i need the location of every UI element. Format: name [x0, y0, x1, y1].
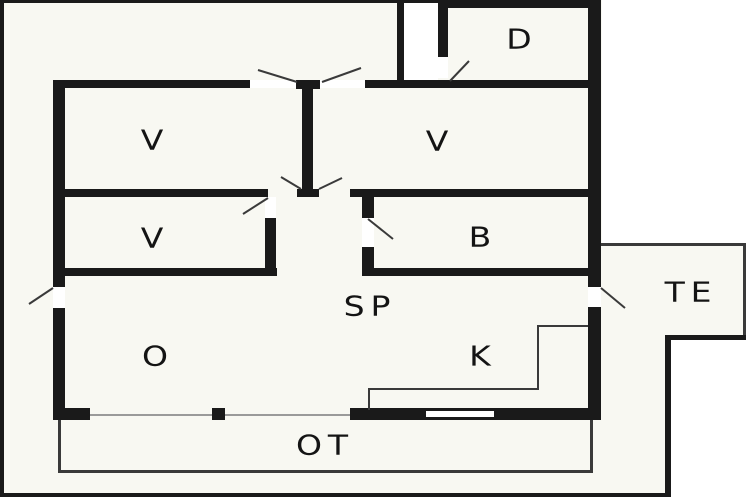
room-label-d: D [506, 23, 531, 56]
wall-b-left-upper [362, 197, 374, 218]
wall-bottom-b [350, 408, 426, 420]
wall-vtr-bottom [350, 189, 600, 197]
pier-stem [302, 88, 313, 189]
room-label-v-mid-left: V [141, 222, 164, 255]
window-top-right [320, 80, 365, 88]
ot-edge-bottom [58, 470, 593, 473]
frame-left [0, 0, 4, 497]
wall-d-top [438, 0, 600, 8]
room-label-ot: OT [296, 429, 354, 462]
wall-d-left [438, 2, 448, 57]
wall-bottom-pier [212, 408, 225, 420]
wall-bottom-a [53, 408, 90, 420]
room-label-k: K [469, 340, 491, 373]
paper-main [0, 0, 602, 497]
room-label-o: O [142, 340, 168, 373]
terrace-edge-bottom [665, 335, 746, 340]
wall-right-lower [588, 307, 601, 420]
wall-right-upper [588, 0, 601, 287]
kitchen-line-bottom [368, 388, 538, 390]
ot-edge-right [590, 420, 593, 473]
door-gap-left [53, 287, 65, 308]
wall-b-bottom [362, 268, 600, 276]
terrace-edge-top [600, 243, 746, 246]
door-gap-terrace [588, 287, 601, 307]
wall-vtl-bottom [53, 189, 268, 197]
wall-vestibule [397, 2, 404, 87]
room-label-sp: SP [344, 290, 397, 323]
door-gap-vml [265, 197, 276, 218]
paper-yard-right [602, 340, 671, 497]
door-gap-d [438, 57, 448, 78]
wall-vml-right [265, 218, 276, 268]
kitchen-line-vert [537, 325, 539, 390]
window-sill-a [90, 414, 212, 416]
frame-bottom [0, 493, 671, 497]
pier-cap-bottom [297, 189, 319, 197]
frame-step-right [665, 335, 671, 497]
entry-slot [404, 3, 438, 80]
floor-plan: D V V V B SP TE O K OT [0, 0, 750, 500]
room-label-v-top-left: V [141, 124, 164, 157]
window-top-left [250, 80, 296, 88]
wall-left-lower [53, 308, 65, 420]
ot-edge-left [58, 420, 61, 473]
room-label-v-top-right: V [426, 125, 449, 158]
kitchen-line-top [537, 325, 588, 327]
wall-vml-bottom [53, 268, 277, 276]
terrace-edge-right [743, 243, 746, 340]
wall-bottom-c [494, 408, 601, 420]
wall-left-upper [53, 80, 65, 287]
window-c-top-line [426, 408, 494, 411]
room-label-b: B [469, 221, 492, 254]
door-gap-b [362, 218, 374, 247]
window-c-bottom-line [426, 417, 494, 420]
wall-top-left [53, 80, 250, 88]
room-label-te: TE [665, 276, 718, 309]
window-sill-b [225, 414, 350, 416]
kitchen-line-step [368, 388, 370, 410]
frame-top [0, 0, 450, 3]
